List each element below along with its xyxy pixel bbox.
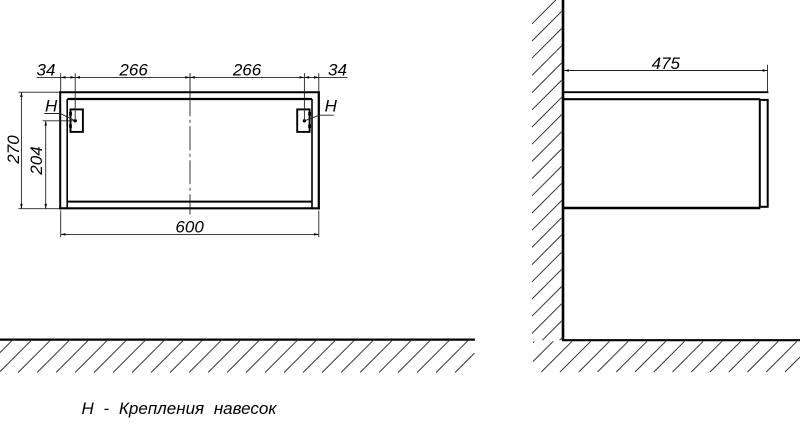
- svg-text:266: 266: [232, 61, 262, 80]
- svg-text:H: H: [325, 97, 338, 116]
- svg-text:270: 270: [4, 135, 23, 165]
- svg-text:34: 34: [328, 60, 347, 79]
- svg-text:266: 266: [118, 61, 148, 80]
- svg-text:600: 600: [175, 218, 204, 237]
- svg-text:Н - Крепления навесок: Н - Крепления навесок: [82, 399, 278, 418]
- svg-text:204: 204: [27, 146, 46, 175]
- svg-text:H: H: [45, 97, 58, 116]
- svg-text:34: 34: [37, 60, 56, 79]
- svg-text:475: 475: [652, 54, 681, 73]
